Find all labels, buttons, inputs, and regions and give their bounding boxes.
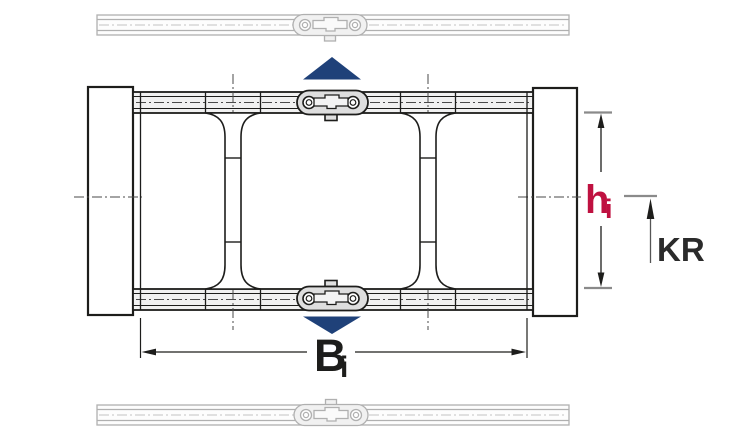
ghost-top-lock-connector	[293, 15, 367, 42]
open-arrow-up-icon	[303, 57, 361, 80]
ghost-bottom-crossbar	[97, 400, 569, 426]
ghost-top-crossbar	[97, 15, 569, 42]
right-strut-body	[401, 113, 456, 289]
inner-height-label-subscript: i	[605, 194, 613, 224]
chain-link-frame	[74, 74, 581, 330]
inner-width-arrow-right-icon	[512, 349, 527, 356]
energy-chain-diagram: h i KR B i	[0, 0, 750, 442]
inner-width-label-subscript: i	[340, 351, 348, 384]
top-connector-tab	[325, 115, 337, 121]
diagram-stage: h i KR B i	[0, 0, 750, 442]
right-side-plate	[533, 88, 577, 316]
inner-height-dimension: h i	[584, 113, 613, 289]
top-lock-connector	[297, 91, 368, 121]
ghost-top-connector-tab	[325, 36, 336, 42]
inner-height-arrow-down-icon	[598, 273, 605, 288]
left-side-plate	[88, 87, 133, 315]
bend-radius-arrow-up-icon	[647, 199, 655, 220]
bend-radius-label: KR	[657, 231, 705, 268]
ghost-bottom-lock-connector	[294, 400, 368, 426]
inner-width-arrow-left-icon	[142, 349, 157, 356]
bottom-lock-connector	[297, 281, 368, 311]
bend-radius-dimension: KR	[624, 196, 705, 268]
inner-height-arrow-up-icon	[598, 114, 605, 129]
left-strut-body	[206, 113, 261, 289]
